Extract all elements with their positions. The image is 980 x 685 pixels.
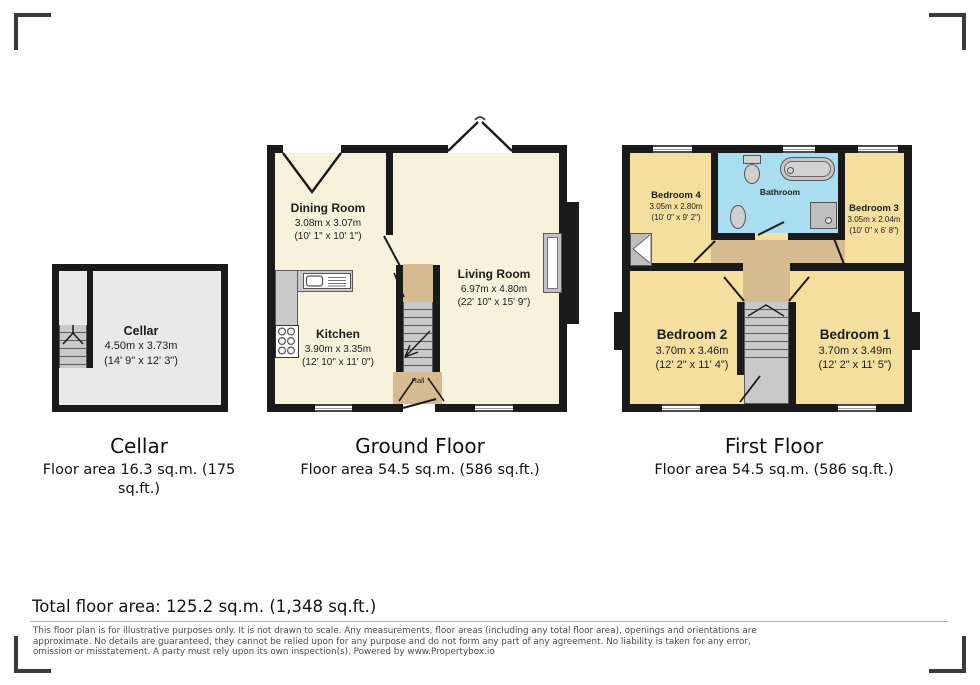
room-bedroom1-label: Bedroom 1 3.70m x 3.49m (12' 2" x 11' 5"…: [819, 326, 892, 372]
ground-caption-area: Floor area 54.5 sq.m. (586 sq.ft.): [290, 461, 550, 480]
first-caption-title: First Floor: [644, 434, 904, 458]
bedroom2-metric: 3.70m x 3.46m: [656, 344, 729, 358]
cellar-caption: Cellar Floor area 16.3 sq.m. (175 sq.ft.…: [30, 434, 248, 499]
kitchen-imperial: (12' 10" x 11' 0"): [302, 356, 374, 369]
cellar-imperial: (14' 9" x 12' 3"): [104, 354, 178, 368]
bedroom1-name: Bedroom 1: [819, 326, 892, 344]
kitchen-metric: 3.90m x 3.35m: [302, 343, 374, 356]
dining-name: Dining Room: [291, 201, 366, 217]
hall-name: Hall: [412, 376, 425, 386]
room-living-label: Living Room 6.97m x 4.80m (22' 10" x 15'…: [458, 267, 531, 309]
first-caption-area: Floor area 54.5 sq.m. (586 sq.ft.): [644, 461, 904, 480]
dining-metric: 3.08m x 3.07m: [291, 217, 366, 230]
floorplan-page: Cellar 4.50m x 3.73m (14' 9" x 12' 3"): [0, 0, 980, 685]
bedroom4-name: Bedroom 4: [650, 190, 703, 202]
cellar-metric: 4.50m x 3.73m: [104, 339, 178, 353]
ground-door-lines: [267, 115, 567, 415]
room-bedroom2-label: Bedroom 2 3.70m x 3.46m (12' 2" x 11' 4"…: [656, 326, 729, 372]
living-imperial: (22' 10" x 15' 9"): [458, 296, 531, 309]
cellar-caption-title: Cellar: [30, 434, 248, 458]
bedroom3-name: Bedroom 3: [848, 203, 901, 215]
disclaimer-line3: omission or misstatement. A party must r…: [33, 647, 948, 658]
disclaimer-line2: approximate. No details are guaranteed, …: [33, 637, 948, 648]
living-name: Living Room: [458, 267, 531, 283]
bedroom2-imperial: (12' 2" x 11' 4"): [656, 358, 729, 372]
bedroom1-metric: 3.70m x 3.49m: [819, 344, 892, 358]
dining-imperial: (10' 1" x 10' 1"): [291, 230, 366, 243]
bedroom1-imperial: (12' 2" x 11' 5"): [819, 358, 892, 372]
first-floorplan: Bedroom 4 3.05m x 2.80m (10' 0" x 9' 2")…: [622, 145, 912, 412]
bedroom3-imperial: (10' 0" x 6' 8"): [848, 226, 901, 236]
frame-corner-top-left: [14, 13, 51, 50]
bedroom2-name: Bedroom 2: [656, 326, 729, 344]
cellar-area-line2: sq.ft.): [30, 480, 248, 499]
room-hall-label: Hall: [412, 376, 425, 386]
first-caption: First Floor Floor area 54.5 sq.m. (586 s…: [644, 434, 904, 480]
total-floor-area: Total floor area: 125.2 sq.m. (1,348 sq.…: [32, 597, 376, 616]
ground-caption-title: Ground Floor: [290, 434, 550, 458]
ground-floorplan: Dining Room 3.08m x 3.07m (10' 1" x 10' …: [267, 145, 567, 412]
divider-line: [30, 621, 948, 622]
bathroom-name: Bathroom: [760, 187, 800, 198]
kitchen-name: Kitchen: [302, 327, 374, 343]
bedroom4-metric: 3.05m x 2.80m: [650, 202, 703, 212]
living-metric: 6.97m x 4.80m: [458, 283, 531, 296]
frame-corner-top-right: [929, 13, 966, 50]
cellar-area-line1: Floor area 16.3 sq.m. (175: [30, 461, 248, 480]
room-bedroom3-label: Bedroom 3 3.05m x 2.04m (10' 0" x 6' 8"): [848, 203, 901, 236]
cellar-name: Cellar: [104, 323, 178, 339]
disclaimer: This floor plan is for illustrative purp…: [33, 626, 948, 658]
bedroom4-imperial: (10' 0" x 9' 2"): [650, 213, 703, 223]
room-bathroom-label: Bathroom: [760, 187, 800, 198]
room-bedroom4-label: Bedroom 4 3.05m x 2.80m (10' 0" x 9' 2"): [650, 190, 703, 223]
room-dining-label: Dining Room 3.08m x 3.07m (10' 1" x 10' …: [291, 201, 366, 243]
ground-caption: Ground Floor Floor area 54.5 sq.m. (586 …: [290, 434, 550, 480]
cellar-caption-area: Floor area 16.3 sq.m. (175 sq.ft.): [30, 461, 248, 499]
room-kitchen-label: Kitchen 3.90m x 3.35m (12' 10" x 11' 0"): [302, 327, 374, 369]
room-cellar-label: Cellar 4.50m x 3.73m (14' 9" x 12' 3"): [104, 323, 178, 368]
bedroom3-metric: 3.05m x 2.04m: [848, 215, 901, 225]
cellar-floorplan: Cellar 4.50m x 3.73m (14' 9" x 12' 3"): [52, 264, 228, 412]
disclaimer-line1: This floor plan is for illustrative purp…: [33, 626, 948, 637]
